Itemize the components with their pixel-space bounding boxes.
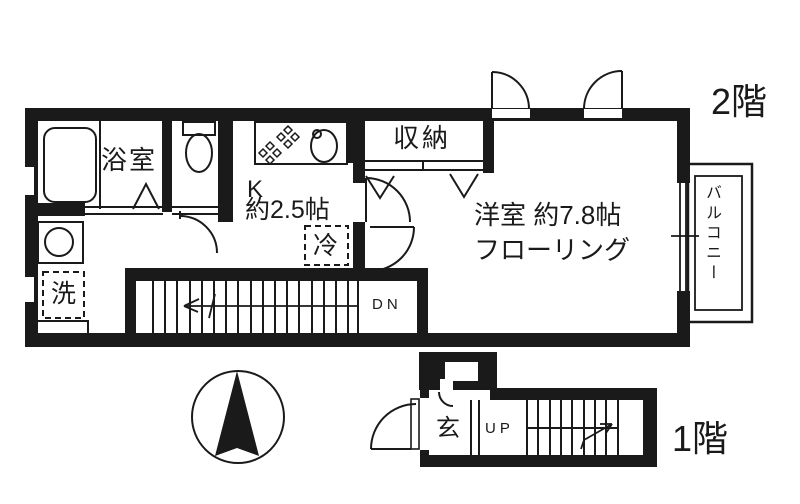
wall-stair-left	[125, 268, 136, 343]
kitchen-size-label: 約2.5帖	[245, 198, 330, 223]
compass-north-icon	[192, 371, 284, 463]
top-door-arc-2	[584, 71, 622, 109]
wall-toilet-right	[218, 121, 233, 222]
wash-area-fixtures	[38, 222, 88, 333]
entrance-closet-door-arc	[439, 392, 453, 406]
entrance-door-arc	[371, 404, 416, 449]
wall-bottom	[25, 333, 690, 347]
wall-kitchen-right-mid	[353, 163, 365, 183]
floor-plan: 2階 1階 浴室 K 約2.5帖 冷 収納 洋室 約7.8帖 フローリング 洗 …	[0, 0, 800, 504]
doorway-kitchen	[353, 183, 365, 222]
wall-kitchen-right-upper	[347, 117, 365, 163]
toilet-door-arc	[180, 216, 217, 253]
stairs-down-label: DN	[372, 297, 402, 312]
entrance-doorway-gap	[420, 398, 429, 450]
bathroom-label: 浴室	[101, 147, 157, 173]
floor1-label: 1階	[672, 421, 728, 457]
stove-burners-icon	[259, 126, 299, 164]
wall-kitchen-right-lower	[353, 222, 365, 272]
storage-fixtures	[365, 161, 483, 198]
wall-storage-right	[483, 117, 494, 173]
top-door-arc-1	[492, 72, 529, 109]
western-room-label: 洋室 約7.8帖	[474, 202, 621, 228]
bathroom-folding-door	[133, 184, 159, 209]
floor2-label: 2階	[711, 84, 767, 120]
wall-1f-bottom	[420, 455, 657, 467]
flooring-label: フローリング	[474, 237, 630, 263]
laundry-label: 洗	[51, 282, 76, 307]
wall-left	[25, 108, 38, 347]
balcony-label: バルコニー	[703, 184, 719, 310]
wall-bath-toilet	[162, 121, 172, 212]
bathtub	[44, 128, 96, 202]
entrance-door-leaf	[411, 399, 419, 449]
refrigerator-label: 冷	[313, 234, 338, 259]
stairs-up-label: UP	[485, 421, 514, 436]
closet-door-mark-2	[450, 174, 478, 197]
window-notch-left-1	[25, 167, 34, 195]
staircase-1f	[527, 400, 618, 455]
toilet-fixtures	[172, 122, 218, 253]
toilet-bowl-icon	[186, 134, 212, 172]
entrance-channel	[440, 379, 453, 392]
stair-direction-arrow-2f	[184, 294, 358, 318]
entrance-window-notch	[445, 362, 478, 381]
kitchen-sink-icon	[311, 130, 337, 162]
wall-1f-top	[490, 388, 657, 400]
washer-alcove-line	[38, 321, 88, 333]
washbasin-bowl-icon	[45, 228, 73, 256]
storage-label: 収納	[393, 125, 451, 151]
staircase-2f	[153, 281, 358, 333]
entrance-label: 玄	[436, 417, 460, 441]
stair-hall-door-arc	[370, 227, 414, 271]
wall-dn-right	[417, 268, 428, 343]
wall-under-tub	[37, 203, 85, 216]
window-notch-left-2	[25, 277, 34, 302]
